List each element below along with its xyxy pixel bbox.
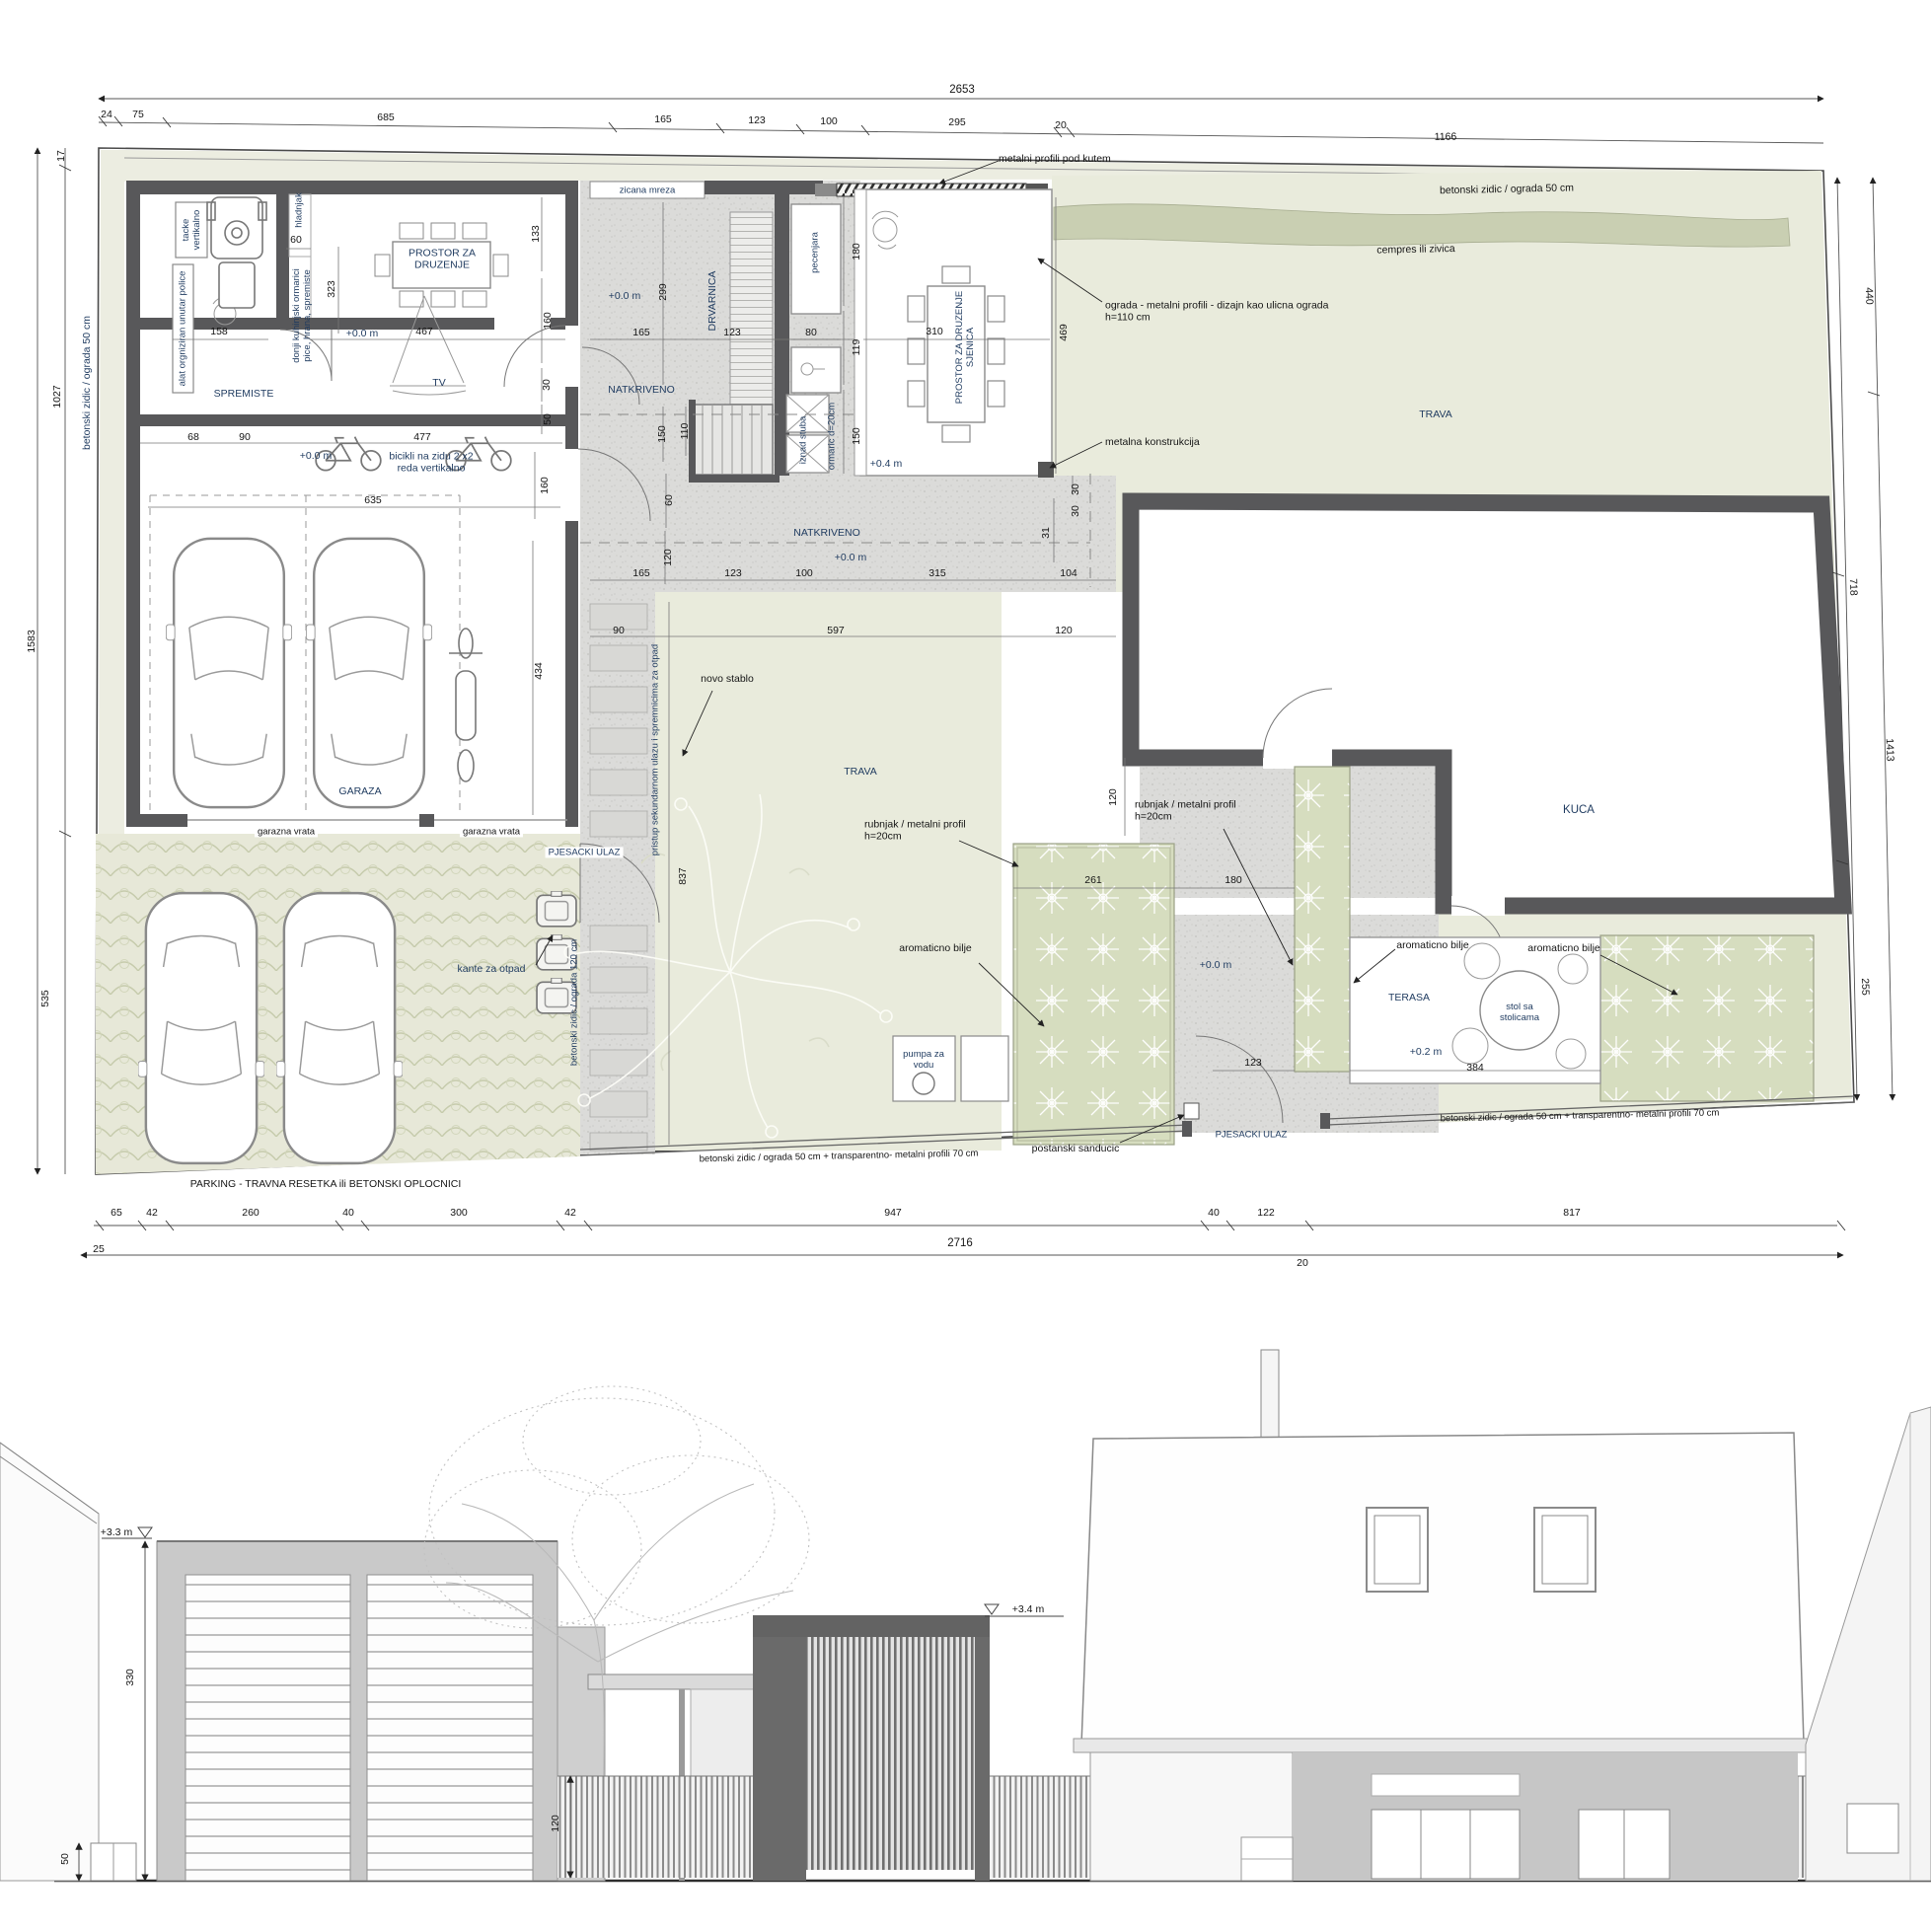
- drawing-layer: [0, 0, 1931, 1932]
- garage-elevation: [157, 1541, 557, 1881]
- neighbor-right: [1806, 1407, 1931, 1881]
- house-elevation: [1074, 1350, 1812, 1881]
- car-icon-parking-1: [138, 893, 264, 1163]
- car-icon-garage-2: [306, 539, 431, 807]
- level-marker-garage: [102, 1527, 152, 1881]
- car-icon-garage-1: [166, 539, 291, 807]
- trash-bin-icon: [537, 978, 576, 1013]
- level-marker-gazebo: [985, 1604, 1064, 1616]
- trash-bin-icon: [537, 891, 576, 927]
- neighbor-left: [0, 1443, 99, 1881]
- gazebo-elevation: [753, 1615, 990, 1881]
- water-pump: [893, 1036, 1008, 1101]
- car-icon-parking-2: [276, 893, 403, 1163]
- elevation: [0, 1350, 1931, 1881]
- gazebo: [854, 189, 1054, 478]
- terrace: [1350, 937, 1600, 1083]
- site-plan-sheet: 2653 24 75 685 165 123 100 295 20 1166 m…: [0, 0, 1931, 1932]
